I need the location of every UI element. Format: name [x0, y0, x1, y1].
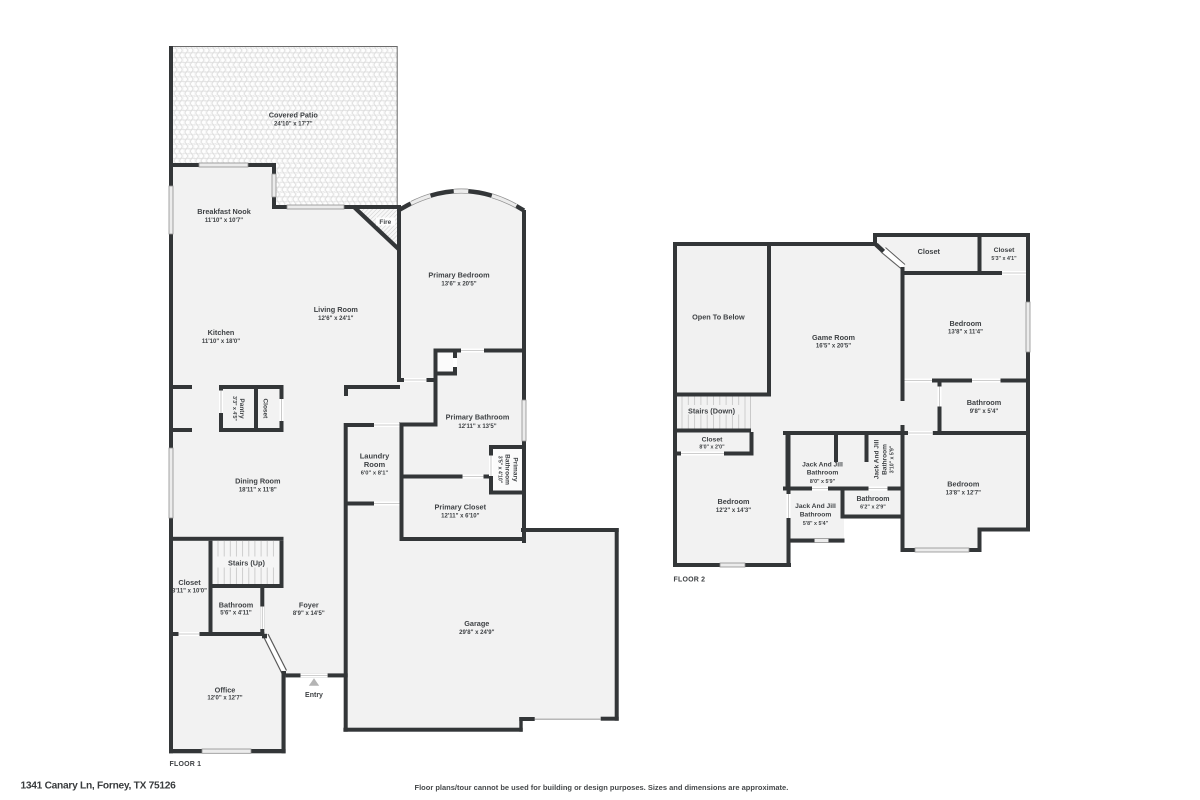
svg-text:Dining Room: Dining Room [235, 477, 281, 486]
svg-text:Fire: Fire [379, 219, 391, 226]
svg-text:12'6" x 24'1": 12'6" x 24'1" [318, 316, 353, 322]
svg-text:12'2" x 14'3": 12'2" x 14'3" [716, 508, 751, 514]
svg-text:3'5" x 4'10": 3'5" x 4'10" [497, 456, 503, 484]
svg-text:Bathroom: Bathroom [881, 444, 888, 475]
svg-text:Bathroom: Bathroom [219, 601, 254, 610]
svg-text:29'8" x 24'9": 29'8" x 24'9" [459, 630, 494, 636]
svg-text:5'3" x 4'1": 5'3" x 4'1" [991, 256, 1017, 262]
svg-text:Bathroom: Bathroom [800, 512, 832, 519]
svg-text:18'11" x 11'8": 18'11" x 11'8" [239, 487, 277, 493]
svg-text:5'6" x 4'11": 5'6" x 4'11" [220, 611, 252, 617]
svg-text:Pantry: Pantry [238, 398, 245, 419]
svg-text:12'0" x 12'7": 12'0" x 12'7" [207, 696, 242, 702]
svg-text:Entry: Entry [305, 692, 323, 699]
svg-text:Covered Patio: Covered Patio [269, 111, 319, 120]
svg-text:12'11" x 6'10": 12'11" x 6'10" [441, 513, 479, 519]
svg-text:Garage: Garage [464, 619, 489, 628]
svg-text:Office: Office [215, 686, 236, 695]
svg-text:24'10" x 17'7": 24'10" x 17'7" [274, 121, 313, 127]
svg-text:Bedroom: Bedroom [949, 319, 982, 328]
svg-text:Primary Bathroom: Primary Bathroom [446, 413, 510, 422]
svg-text:Kitchen: Kitchen [208, 328, 235, 337]
svg-text:16'5" x 20'5": 16'5" x 20'5" [816, 344, 851, 350]
svg-text:Jack And Jill: Jack And Jill [802, 461, 843, 468]
svg-text:Primary Bedroom: Primary Bedroom [428, 271, 490, 280]
svg-text:Foyer: Foyer [299, 601, 319, 610]
svg-text:3'10" x 5'9": 3'10" x 5'9" [890, 445, 896, 473]
svg-text:Open To Below: Open To Below [692, 313, 745, 322]
svg-text:Breakfast Nook: Breakfast Nook [197, 207, 251, 216]
svg-text:Primary Closet: Primary Closet [435, 503, 487, 512]
svg-text:Bathroom: Bathroom [967, 398, 1002, 407]
svg-text:6'2" x 2'9": 6'2" x 2'9" [860, 504, 886, 510]
svg-text:11'10" x 18'0": 11'10" x 18'0" [202, 339, 240, 345]
svg-text:9'8" x 5'4": 9'8" x 5'4" [970, 409, 999, 415]
svg-text:Bedroom: Bedroom [947, 480, 980, 489]
svg-text:3'11" x 10'0": 3'11" x 10'0" [172, 588, 207, 594]
svg-text:Closet: Closet [918, 247, 941, 256]
svg-text:Primary: Primary [512, 457, 519, 482]
svg-text:Closet: Closet [178, 578, 201, 587]
svg-text:Bathroom: Bathroom [856, 496, 889, 503]
svg-text:6'0" x 8'1": 6'0" x 8'1" [361, 471, 389, 477]
svg-text:13'8" x 12'7": 13'8" x 12'7" [946, 490, 981, 496]
svg-text:Jack And Jill: Jack And Jill [795, 503, 836, 510]
svg-text:13'8" x 11'4": 13'8" x 11'4" [948, 330, 983, 336]
svg-text:8'0" x 5'9": 8'0" x 5'9" [810, 479, 836, 485]
svg-text:Bathroom: Bathroom [807, 470, 839, 477]
svg-text:Jack And Jill: Jack And Jill [874, 440, 881, 480]
svg-text:13'6" x 20'5": 13'6" x 20'5" [441, 281, 476, 287]
svg-text:Closet: Closet [994, 247, 1016, 254]
svg-text:Bathroom: Bathroom [504, 454, 511, 485]
svg-text:1341 Canary Ln, Forney, TX 751: 1341 Canary Ln, Forney, TX 75126 [21, 781, 177, 792]
svg-text:Living Room: Living Room [314, 305, 359, 314]
svg-text:Room: Room [364, 460, 386, 469]
svg-text:Stairs (Down): Stairs (Down) [688, 407, 736, 416]
svg-text:Closet: Closet [262, 398, 269, 419]
svg-text:8'9" x 14'5": 8'9" x 14'5" [293, 611, 325, 617]
svg-text:11'10" x 10'7": 11'10" x 10'7" [205, 218, 243, 224]
svg-text:5'8" x 5'4": 5'8" x 5'4" [803, 521, 829, 527]
svg-text:Game Room: Game Room [812, 333, 855, 342]
svg-text:FLOOR 1: FLOOR 1 [170, 761, 202, 768]
svg-text:Stairs (Up): Stairs (Up) [228, 559, 265, 568]
svg-text:3'3" x 4'5": 3'3" x 4'5" [231, 396, 237, 421]
svg-text:8'0" x 2'0": 8'0" x 2'0" [699, 444, 725, 450]
svg-text:Floor plans/tour cannot be use: Floor plans/tour cannot be used for buil… [415, 783, 789, 792]
svg-text:12'11" x 13'5": 12'11" x 13'5" [458, 424, 496, 430]
svg-text:Closet: Closet [702, 436, 724, 443]
svg-text:FLOOR 2: FLOOR 2 [674, 577, 706, 584]
svg-text:Bedroom: Bedroom [717, 497, 750, 506]
